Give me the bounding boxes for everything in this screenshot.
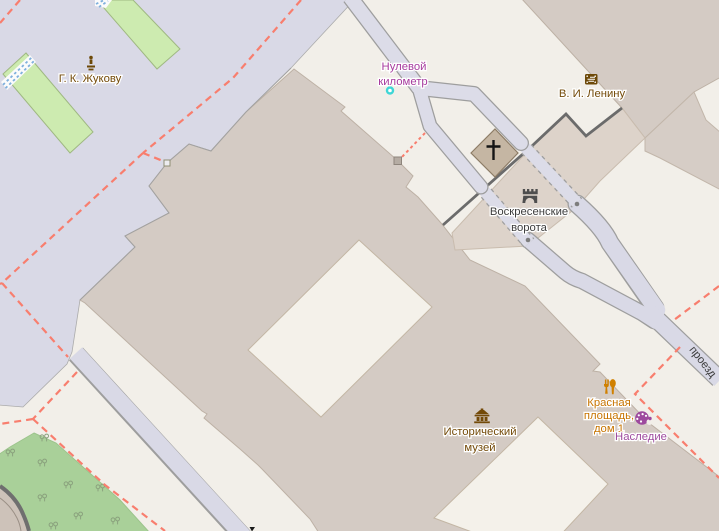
svg-text:Нулевой: Нулевой	[382, 61, 427, 73]
svg-text:В. И. Ленину: В. И. Ленину	[559, 88, 626, 100]
svg-text:площадь,: площадь,	[584, 410, 634, 422]
svg-text:километр: километр	[378, 76, 427, 88]
svg-text:Исторический: Исторический	[443, 426, 516, 438]
svg-text:Красная: Красная	[587, 397, 630, 409]
svg-text:Наследие: Наследие	[615, 431, 667, 443]
svg-text:Воскресенские: Воскресенские	[490, 206, 568, 218]
svg-text:ворота: ворота	[511, 222, 548, 234]
svg-text:Г. К. Жукову: Г. К. Жукову	[59, 73, 122, 85]
svg-text:музей: музей	[464, 442, 495, 454]
